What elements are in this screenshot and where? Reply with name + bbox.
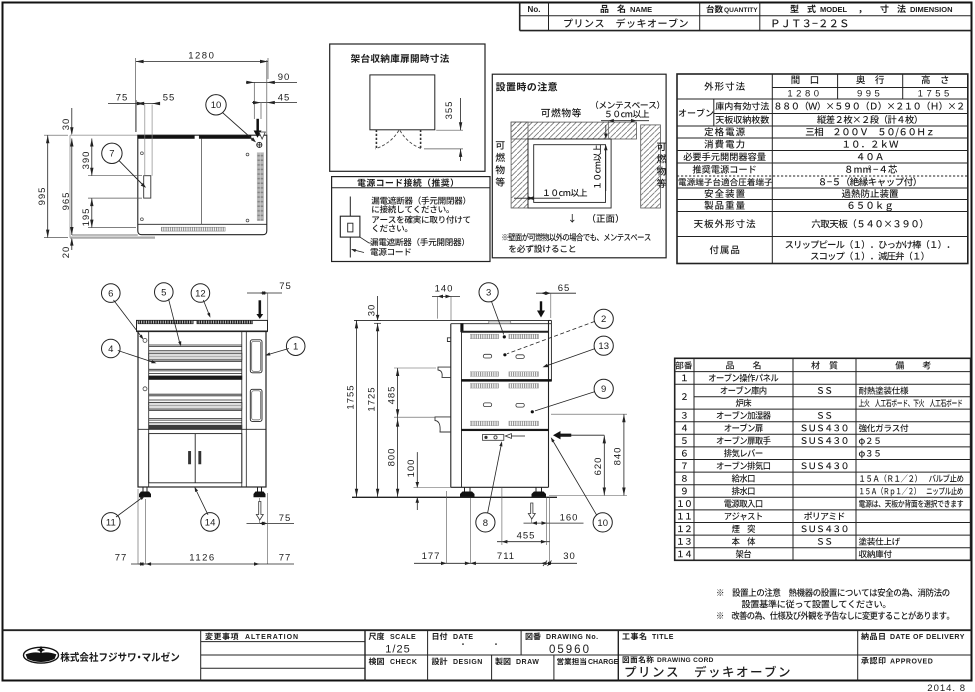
- svg-text:DRAWING CORD: DRAWING CORD: [657, 657, 714, 664]
- svg-text:CHARGE: CHARGE: [588, 659, 619, 666]
- svg-text:30: 30: [563, 551, 576, 562]
- svg-text:195: 195: [81, 208, 92, 227]
- svg-text:65: 65: [558, 283, 571, 294]
- svg-text:7: 7: [109, 149, 114, 160]
- svg-text:DESIGN: DESIGN: [453, 659, 483, 666]
- svg-text:・: ・: [459, 640, 467, 649]
- svg-text:1126: 1126: [189, 553, 215, 564]
- svg-text:1280: 1280: [188, 51, 215, 62]
- svg-text:711: 711: [497, 551, 515, 562]
- svg-text:10: 10: [211, 100, 222, 111]
- svg-text:SCALE: SCALE: [390, 634, 416, 641]
- svg-text:995: 995: [37, 187, 48, 206]
- svg-text:355: 355: [444, 101, 455, 120]
- svg-text:1755: 1755: [345, 384, 356, 409]
- svg-text:6: 6: [108, 289, 113, 300]
- svg-text:77: 77: [115, 553, 128, 564]
- svg-text:14: 14: [205, 517, 216, 528]
- svg-text:1: 1: [293, 342, 298, 353]
- svg-text:DATE OF DELIVERY: DATE OF DELIVERY: [890, 634, 965, 641]
- svg-text:840: 840: [613, 447, 624, 466]
- svg-text:177: 177: [422, 551, 441, 562]
- svg-text:・: ・: [492, 640, 500, 649]
- svg-text:10: 10: [597, 518, 608, 529]
- svg-text:45: 45: [278, 93, 291, 104]
- svg-text:3: 3: [486, 288, 491, 299]
- svg-text:8: 8: [483, 518, 488, 529]
- svg-text:20: 20: [61, 246, 72, 259]
- svg-text:1725: 1725: [366, 386, 377, 411]
- svg-text:800: 800: [386, 448, 397, 467]
- svg-text:9: 9: [601, 384, 606, 395]
- svg-text:DIMENSION: DIMENSION: [910, 5, 953, 14]
- svg-text:77: 77: [279, 553, 292, 564]
- svg-text:4: 4: [108, 344, 113, 355]
- svg-text:90: 90: [278, 72, 291, 83]
- svg-text:995: 995: [857, 89, 883, 100]
- svg-text:455: 455: [517, 531, 536, 542]
- svg-text:140: 140: [435, 284, 454, 295]
- svg-text:ALTERATION: ALTERATION: [245, 634, 299, 641]
- svg-text:75: 75: [279, 281, 292, 292]
- svg-text:160: 160: [560, 513, 579, 524]
- svg-text:5: 5: [161, 287, 166, 298]
- svg-text:390: 390: [81, 151, 92, 170]
- svg-text:30: 30: [367, 304, 378, 317]
- svg-text:1755: 1755: [918, 89, 953, 100]
- svg-text:485: 485: [386, 386, 397, 405]
- svg-text:DRAW: DRAW: [516, 659, 539, 666]
- svg-text:05960: 05960: [549, 644, 591, 656]
- svg-text:1/25: 1/25: [385, 644, 410, 656]
- svg-text:965: 965: [61, 192, 72, 211]
- svg-text:CHECK: CHECK: [390, 659, 417, 666]
- svg-text:2014. 8: 2014. 8: [927, 683, 966, 692]
- svg-text:No.: No.: [528, 5, 541, 14]
- svg-text:1280: 1280: [787, 89, 822, 100]
- svg-text:620: 620: [593, 457, 604, 476]
- svg-text:NAME: NAME: [630, 5, 652, 14]
- svg-text:APPROVED: APPROVED: [890, 658, 933, 665]
- svg-text:12: 12: [195, 288, 206, 299]
- svg-text:30: 30: [61, 118, 72, 131]
- svg-text:TITLE: TITLE: [652, 634, 674, 641]
- svg-text:QUANTITY: QUANTITY: [724, 7, 758, 14]
- svg-text:75: 75: [279, 513, 292, 524]
- svg-text:2: 2: [601, 314, 606, 325]
- svg-text:55: 55: [163, 93, 176, 104]
- svg-text:MODEL: MODEL: [820, 5, 848, 14]
- svg-text:100: 100: [406, 459, 417, 478]
- svg-text:13: 13: [598, 341, 609, 352]
- svg-text:DRAWING No.: DRAWING No.: [546, 634, 599, 641]
- svg-text:11: 11: [106, 517, 116, 528]
- svg-text:75: 75: [116, 93, 129, 104]
